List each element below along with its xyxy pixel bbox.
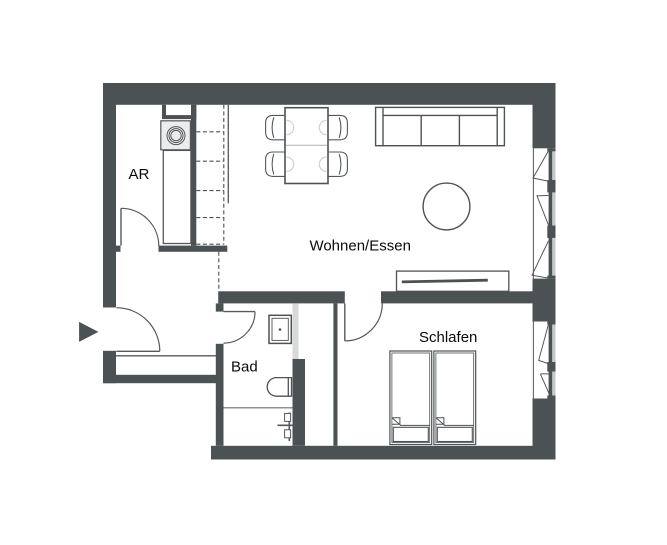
- svg-text:Schlafen: Schlafen: [419, 329, 477, 346]
- svg-text:AR: AR: [128, 166, 149, 183]
- svg-text:Bad: Bad: [231, 359, 258, 376]
- svg-text:Wohnen/Essen: Wohnen/Essen: [309, 238, 410, 255]
